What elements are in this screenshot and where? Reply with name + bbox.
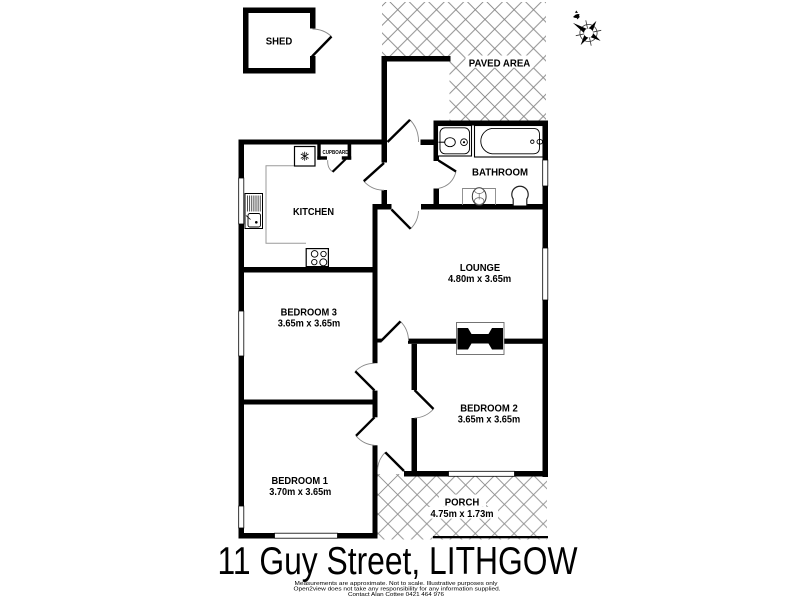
svg-text:KITCHEN: KITCHEN [293, 207, 334, 218]
svg-text:BEDROOM 2: BEDROOM 2 [460, 404, 518, 415]
svg-text:PORCH: PORCH [445, 498, 480, 509]
svg-text:3.70m x 3.65m: 3.70m x 3.65m [269, 487, 331, 498]
svg-text:BEDROOM 1: BEDROOM 1 [272, 476, 329, 487]
svg-text:Contact Alan Cottee 0421 464 9: Contact Alan Cottee 0421 464 976 [348, 592, 444, 598]
svg-text:SHED: SHED [266, 37, 293, 48]
svg-text:CUPBOARD: CUPBOARD [323, 150, 349, 156]
svg-text:LOUNGE: LOUNGE [460, 263, 500, 274]
svg-text:BATHROOM: BATHROOM [472, 168, 528, 179]
svg-text:PAVED AREA: PAVED AREA [469, 58, 531, 69]
svg-text:11 Guy Street, LITHGOW: 11 Guy Street, LITHGOW [218, 540, 579, 583]
svg-text:4.75m x 1.73m: 4.75m x 1.73m [431, 509, 494, 520]
svg-text:3.65m x 3.65m: 3.65m x 3.65m [278, 319, 341, 330]
svg-text:BEDROOM 3: BEDROOM 3 [281, 308, 337, 319]
svg-text:4.80m x 3.65m: 4.80m x 3.65m [448, 274, 511, 285]
svg-text:3.65m x 3.65m: 3.65m x 3.65m [458, 415, 521, 426]
